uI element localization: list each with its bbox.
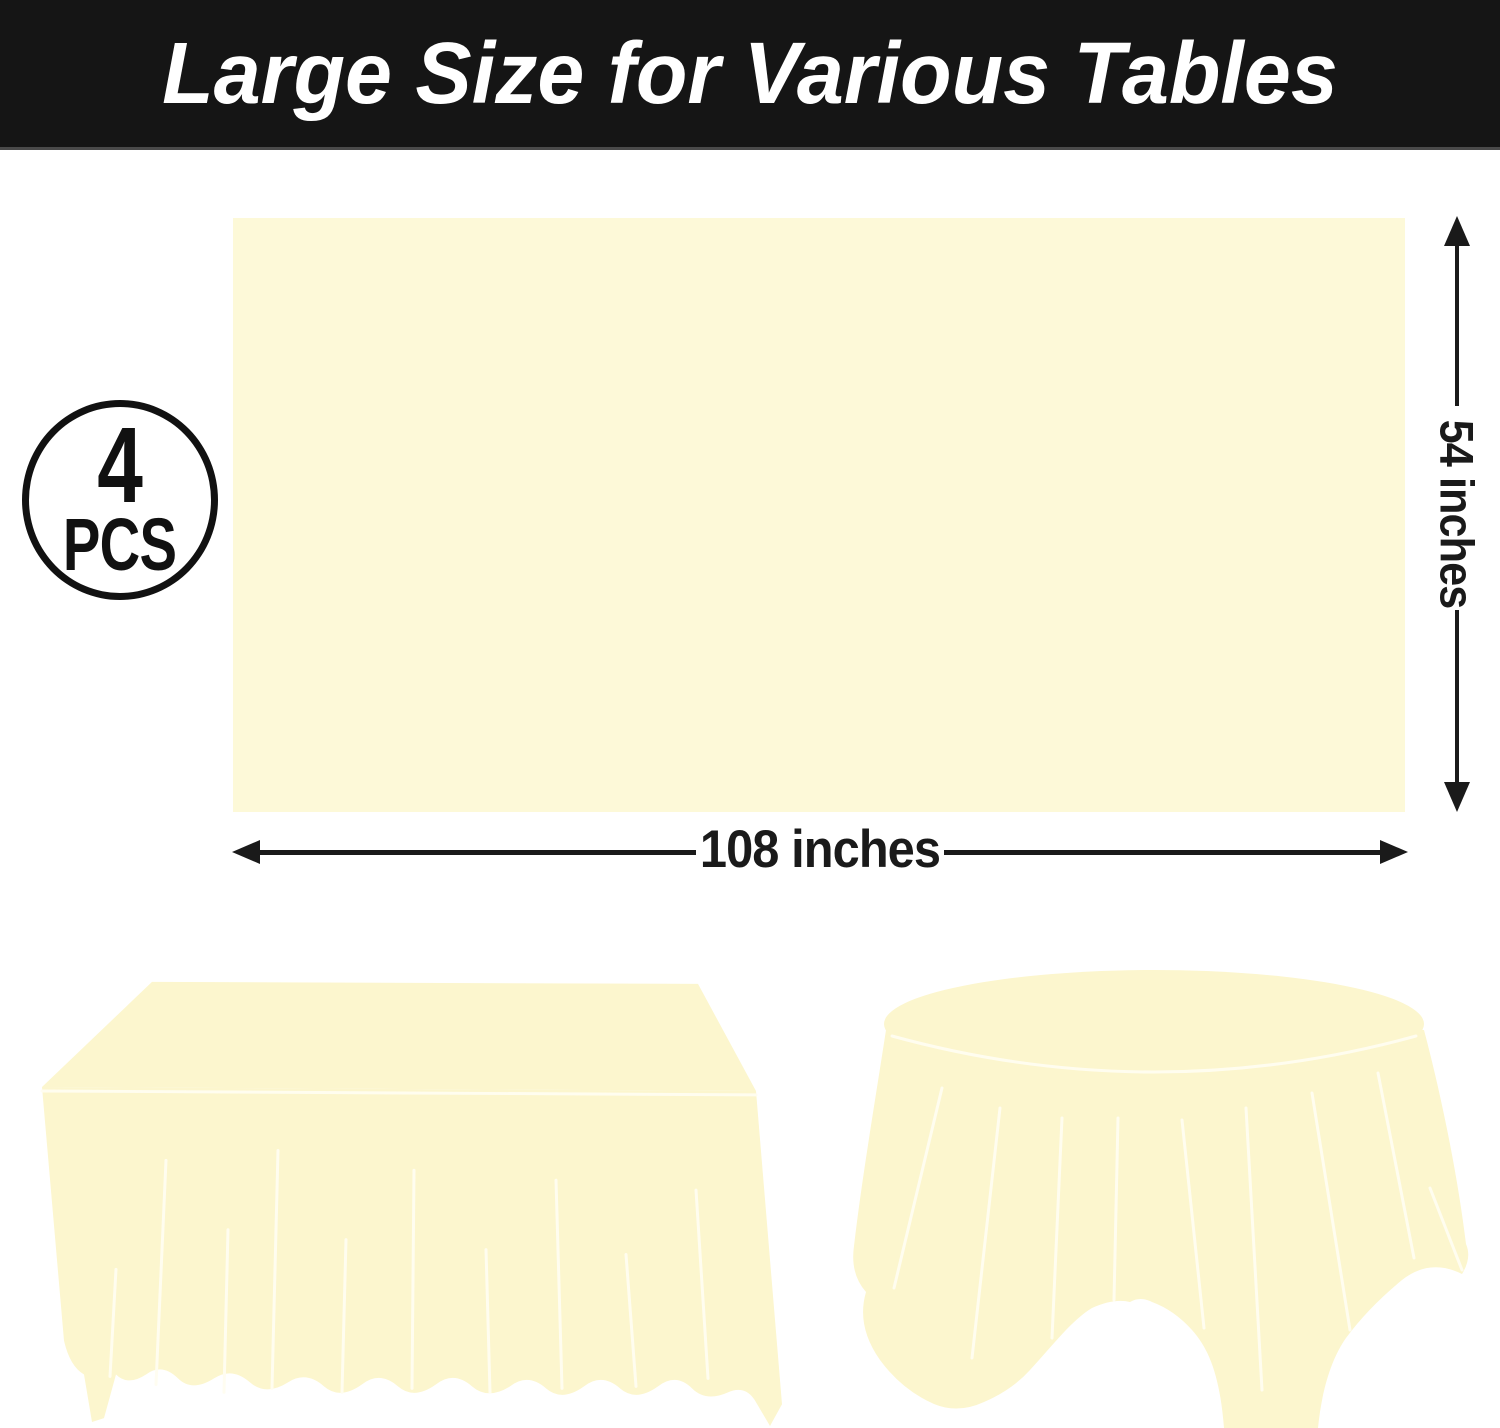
width-dimension-line-left — [258, 850, 696, 855]
height-dimension-line-bottom — [1455, 610, 1459, 784]
rect-table-top — [42, 982, 756, 1091]
height-dimension-line-top — [1455, 244, 1459, 406]
badge-count: 4 — [97, 421, 143, 510]
round-table-top — [884, 970, 1424, 1078]
banner-title: Large Size for Various Tables — [162, 24, 1338, 124]
pcs-badge: 4 PCS — [22, 400, 218, 600]
rectangular-table-icon — [16, 972, 791, 1428]
tablecloth-swatch — [233, 218, 1405, 812]
tablecloth-size-infographic: Large Size for Various Tables 4 PCS 54 i… — [0, 0, 1500, 1428]
round-table-cloth — [853, 1030, 1468, 1428]
width-dimension-line-right — [944, 850, 1382, 855]
width-label: 108 inches — [700, 819, 940, 880]
width-dimension: 108 inches — [232, 830, 1408, 874]
banner: Large Size for Various Tables — [0, 0, 1500, 150]
badge-unit: PCS — [63, 512, 176, 579]
height-label: 54 inches — [1430, 420, 1485, 609]
arrowhead-down-icon — [1444, 782, 1470, 812]
round-table-icon — [762, 958, 1500, 1428]
arrowhead-up-icon — [1444, 216, 1470, 246]
height-dimension: 54 inches — [1444, 216, 1470, 812]
arrowhead-right-icon — [1380, 840, 1408, 864]
fold-line — [412, 1170, 414, 1388]
tablecloth-swatch-fill — [233, 218, 1405, 812]
arrowhead-left-icon — [232, 840, 260, 864]
